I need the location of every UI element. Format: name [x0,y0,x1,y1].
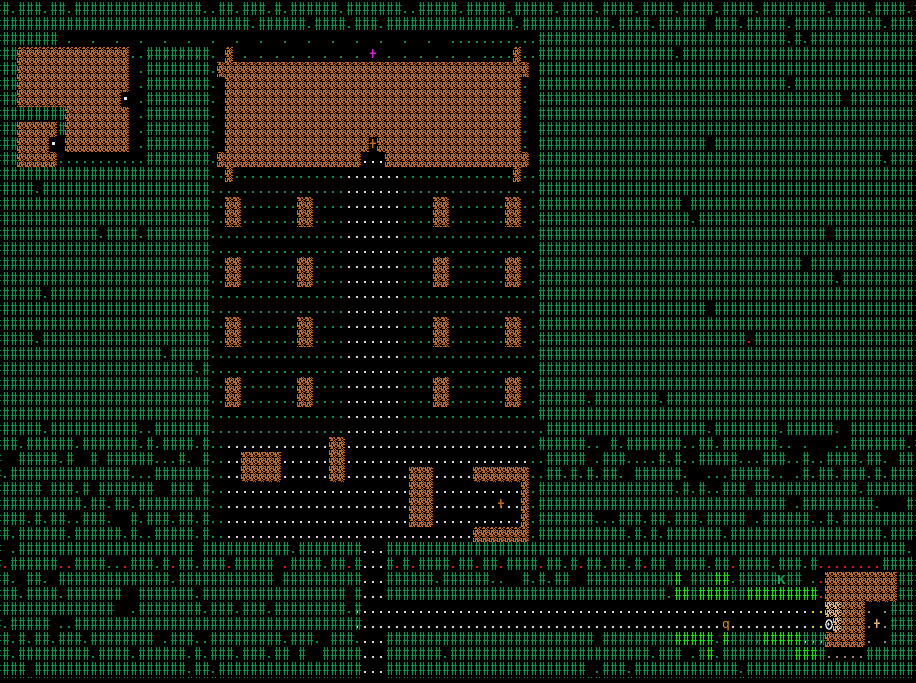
svg-text:q: q [722,617,730,632]
svg-text:K: K [777,573,786,589]
